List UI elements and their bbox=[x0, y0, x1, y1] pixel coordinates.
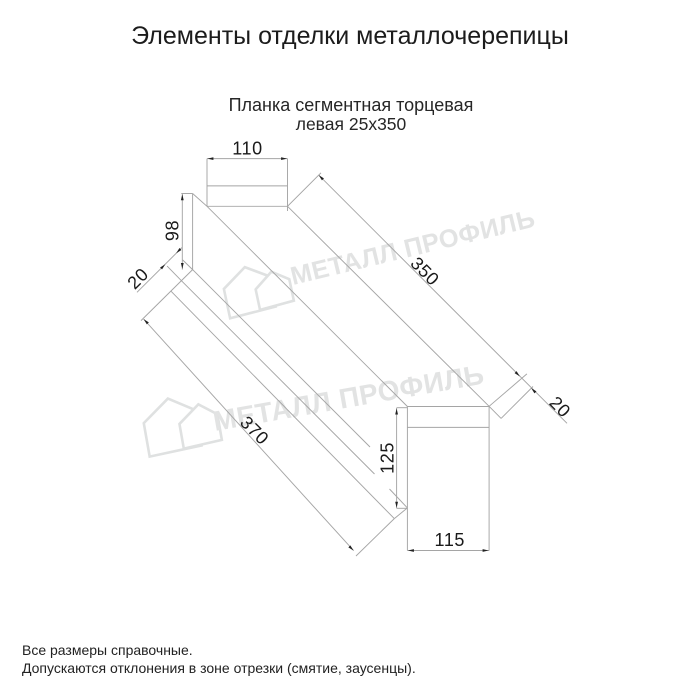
svg-text:МЕТАЛЛ ПРОФИЛЬ: МЕТАЛЛ ПРОФИЛЬ bbox=[288, 205, 538, 291]
svg-text:Все размеры справочные.: Все размеры справочные. bbox=[22, 642, 193, 658]
svg-text:115: 115 bbox=[435, 530, 466, 550]
svg-text:20: 20 bbox=[545, 392, 574, 421]
svg-text:98: 98 bbox=[162, 220, 182, 241]
svg-text:20: 20 bbox=[123, 264, 152, 293]
svg-text:110: 110 bbox=[232, 139, 263, 159]
svg-text:125: 125 bbox=[377, 442, 397, 474]
svg-text:Планка сегментная торцевая: Планка сегментная торцевая bbox=[229, 95, 474, 115]
svg-text:Допускаются отклонения в зоне: Допускаются отклонения в зоне отрезки (с… bbox=[22, 660, 416, 676]
svg-text:левая 25х350: левая 25х350 bbox=[296, 114, 407, 134]
svg-text:Элементы отделки металлочерепи: Элементы отделки металлочерепицы bbox=[131, 22, 569, 50]
